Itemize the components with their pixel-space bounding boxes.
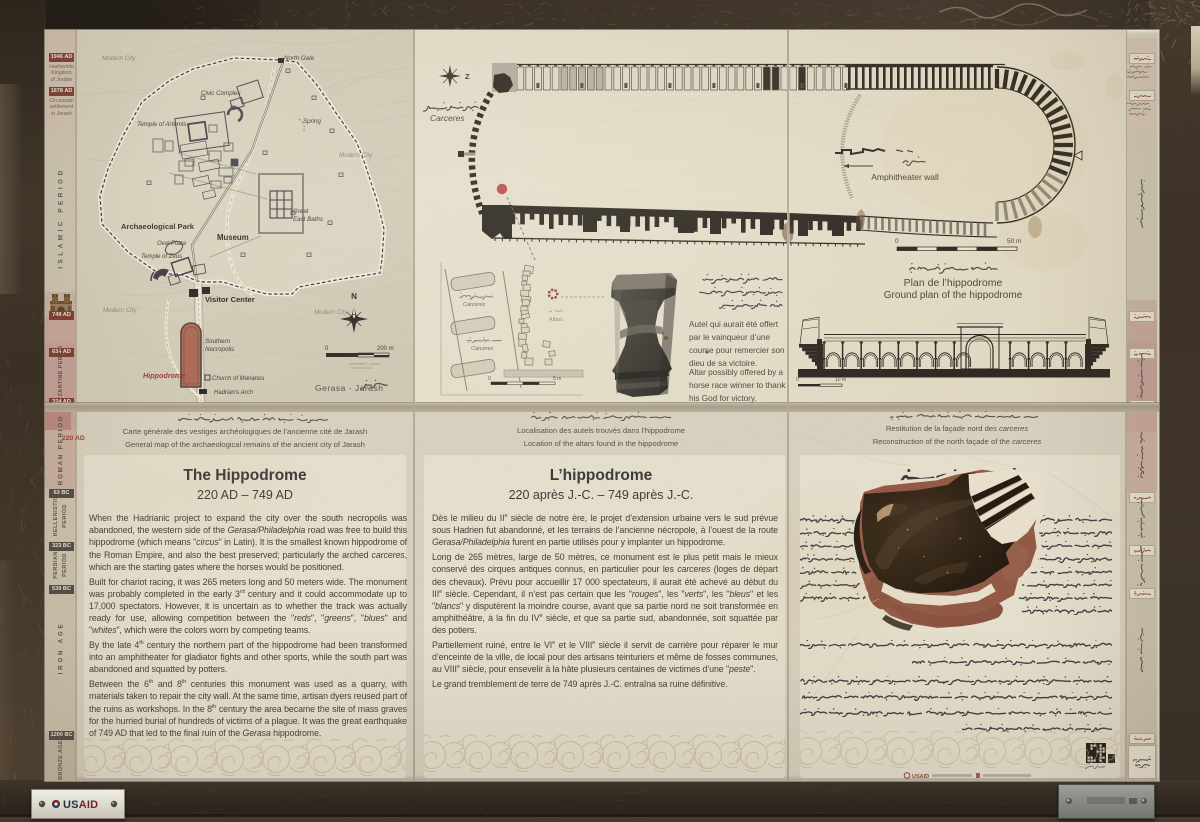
svg-text:USAID: USAID xyxy=(63,799,98,811)
